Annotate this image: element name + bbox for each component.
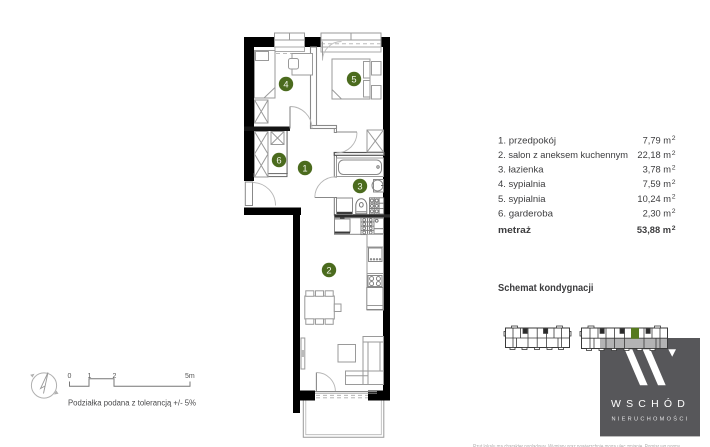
svg-text:2: 2 [672, 225, 676, 232]
svg-text:1. przedpokój: 1. przedpokój [498, 135, 556, 145]
svg-text:3,78 m: 3,78 m [643, 165, 672, 175]
svg-text:Podziałka podana z tolerancją: Podziałka podana z tolerancją +/- 5% [68, 399, 196, 408]
svg-text:metraż: metraż [498, 225, 531, 235]
svg-text:2: 2 [326, 264, 331, 275]
svg-text:4. sypialnia: 4. sypialnia [498, 179, 546, 189]
svg-text:WSCHÓD: WSCHÓD [611, 397, 690, 410]
svg-text:7,79 m: 7,79 m [643, 135, 672, 145]
svg-text:6. garderoba: 6. garderoba [498, 208, 554, 218]
svg-text:22,18 m: 22,18 m [637, 150, 671, 160]
svg-text:1: 1 [302, 162, 307, 173]
svg-text:5. sypialnia: 5. sypialnia [498, 194, 546, 204]
svg-text:53,88 m: 53,88 m [637, 225, 671, 235]
svg-text:Schemat kondygnacji: Schemat kondygnacji [498, 283, 594, 294]
svg-text:0: 0 [68, 373, 72, 380]
svg-text:10,24 m: 10,24 m [637, 194, 671, 204]
svg-text:6: 6 [276, 154, 281, 165]
svg-text:NIERUCHOMOŚCI: NIERUCHOMOŚCI [611, 415, 689, 423]
svg-text:4: 4 [283, 78, 288, 89]
svg-text:5m: 5m [185, 373, 195, 380]
svg-text:2: 2 [672, 150, 676, 157]
svg-text:2. salon z aneksem kuchennym: 2. salon z aneksem kuchennym [498, 150, 628, 160]
svg-text:5: 5 [351, 73, 356, 84]
svg-text:3: 3 [357, 180, 362, 191]
svg-text:2: 2 [672, 164, 676, 171]
svg-text:7,59 m: 7,59 m [643, 179, 672, 189]
svg-text:3. łazienka: 3. łazienka [498, 165, 544, 175]
svg-text:2: 2 [672, 135, 676, 142]
svg-text:Rzut lokalu ma charakter poglą: Rzut lokalu ma charakter poglądowy. Wymi… [473, 444, 681, 447]
svg-text:2,30 m: 2,30 m [643, 208, 672, 218]
svg-text:2: 2 [672, 179, 676, 186]
svg-text:2: 2 [672, 194, 676, 201]
svg-text:2: 2 [672, 208, 676, 215]
